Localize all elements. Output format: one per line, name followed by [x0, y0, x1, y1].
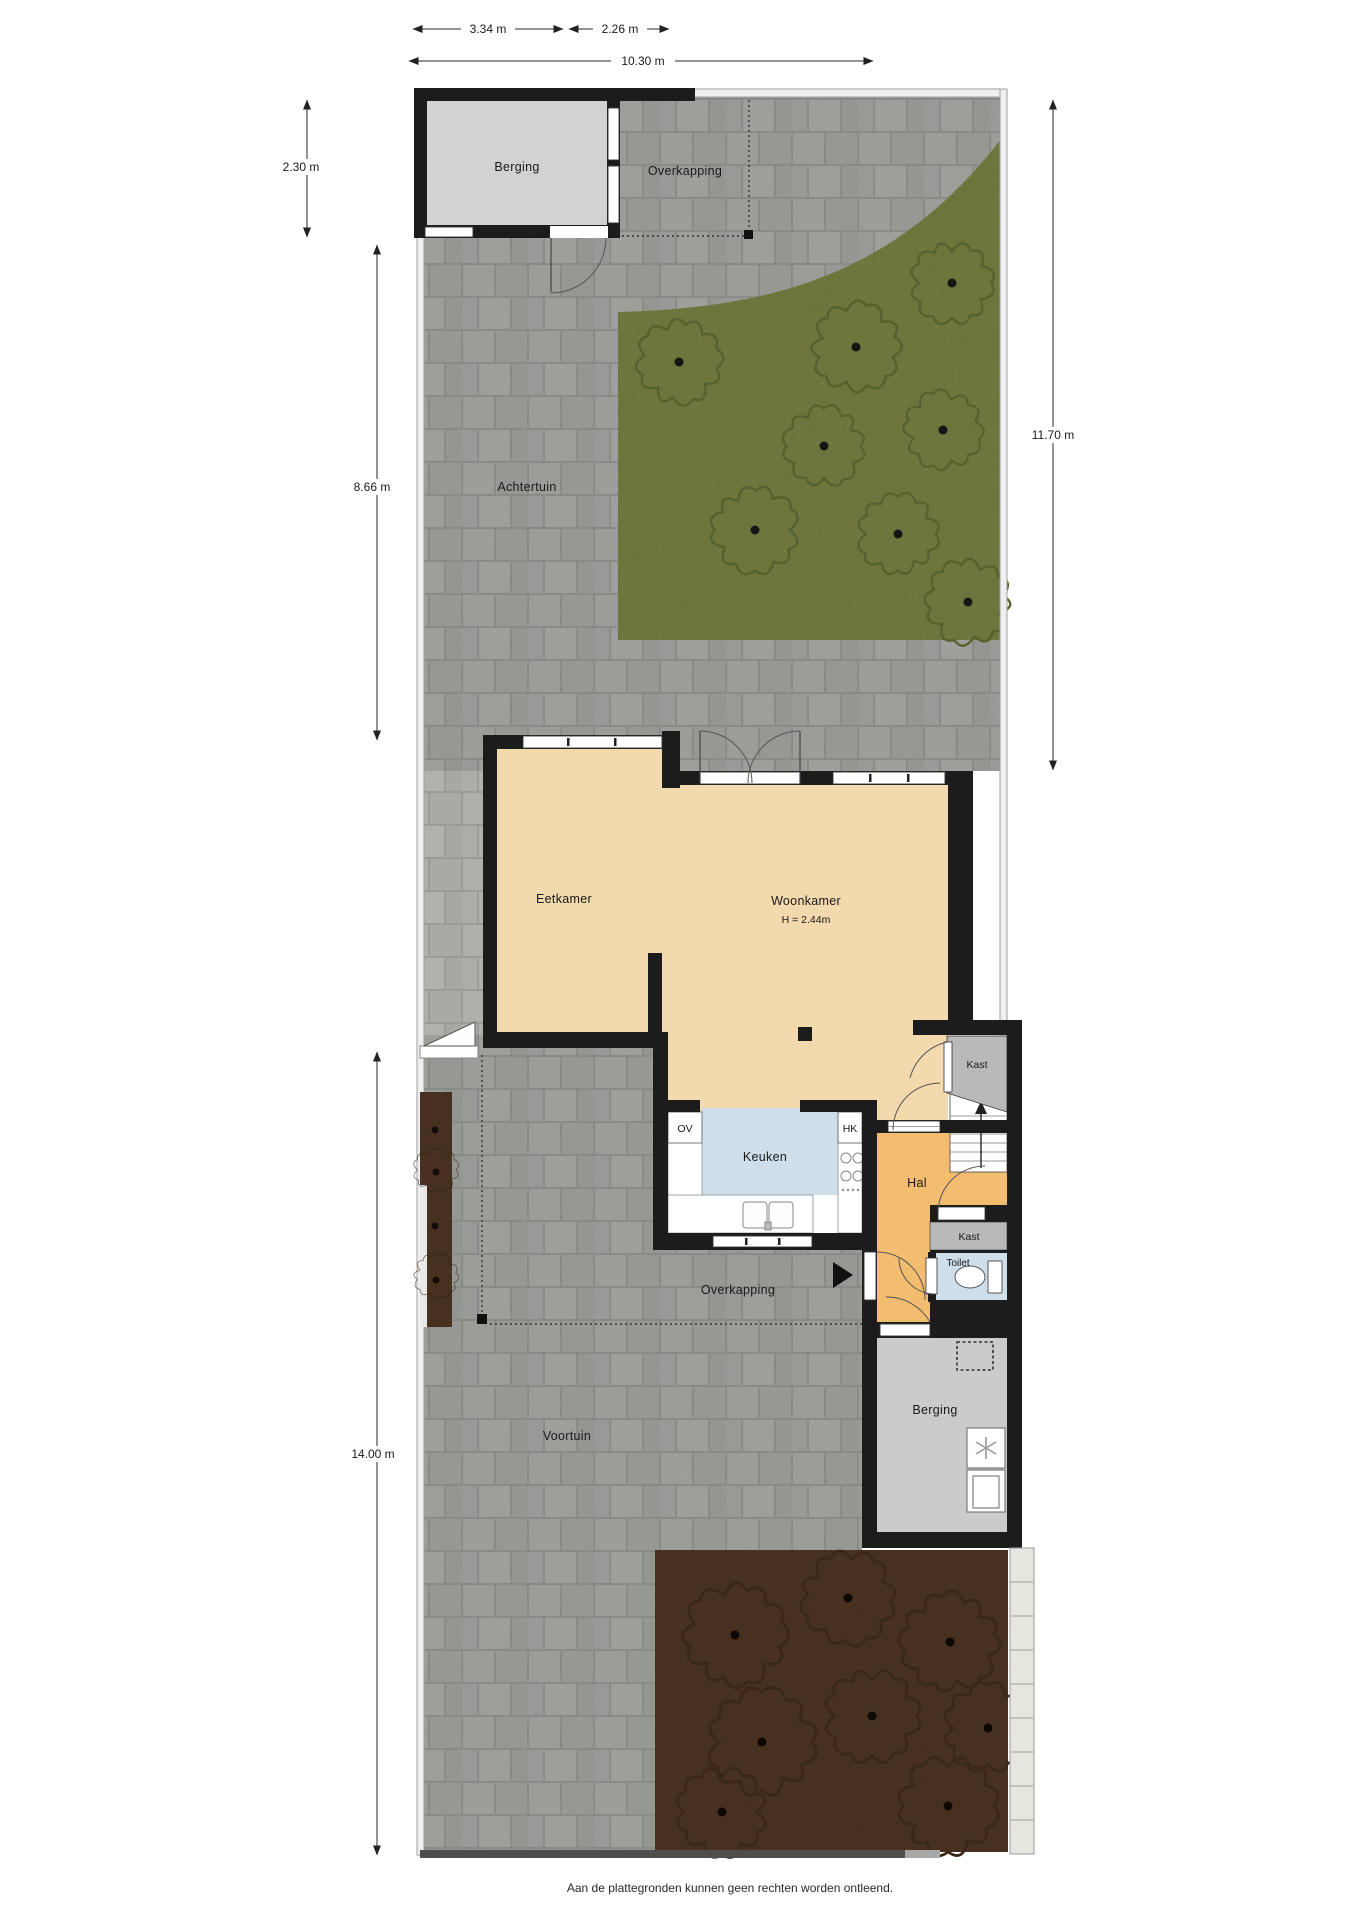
label-hal: Hal	[907, 1176, 927, 1190]
dim-top-total: 10.30 m	[621, 54, 664, 68]
toilet-door	[926, 1258, 937, 1294]
french-doors	[700, 772, 800, 784]
label-toilet: Toilet	[946, 1258, 970, 1269]
living-room-column	[798, 1027, 812, 1041]
hall-storage-door	[880, 1324, 930, 1336]
label-hk: HK	[843, 1123, 858, 1135]
dim-top-right: 2.26 m	[602, 22, 639, 36]
dining-window	[523, 736, 662, 748]
living-room-floor	[662, 785, 948, 1120]
living-window	[833, 772, 945, 784]
toilet-bowl-icon	[955, 1266, 985, 1288]
dim-side-voortuin: 14.00 m	[351, 1447, 394, 1461]
storage-window-right-1	[608, 108, 619, 160]
dim-side-right: 11.70 m	[1032, 428, 1074, 442]
label-eetkamer: Eetkamer	[536, 892, 592, 906]
dim-top-left: 3.34 m	[470, 22, 507, 36]
storage-window-bottom	[425, 227, 473, 237]
floor-plan-canvas: Berging Overkapping Achtertuin Eetkamer …	[0, 0, 1358, 1920]
label-berging-top: Berging	[494, 160, 539, 174]
label-oven: OV	[677, 1123, 692, 1135]
label-overkapping-top: Overkapping	[648, 164, 722, 178]
dim-side-berging: 2.30 m	[283, 160, 320, 174]
closet-lower-door	[938, 1207, 985, 1220]
label-overkapping-onder: Overkapping	[701, 1283, 775, 1297]
stepping-stone-path	[1010, 1548, 1034, 1854]
label-woonkamer-ceiling: H = 2.44m	[782, 914, 831, 926]
storage-window-right-2	[608, 166, 619, 223]
disclaimer-text: Aan de plattegronden kunnen geen rechten…	[567, 1881, 893, 1895]
label-kast-onder: Kast	[958, 1231, 979, 1243]
floor-plan-page: Berging Overkapping Achtertuin Eetkamer …	[0, 0, 1358, 1920]
dim-side-achtertuin: 8.66 m	[354, 480, 391, 494]
kitchen-window	[713, 1236, 812, 1247]
label-berging-onder: Berging	[912, 1403, 957, 1417]
label-keuken: Keuken	[743, 1150, 787, 1164]
label-kast-boven: Kast	[966, 1059, 987, 1071]
closet-upper-door	[944, 1042, 952, 1092]
garden-gate	[420, 1046, 478, 1058]
label-woonkamer: Woonkamer	[771, 894, 841, 908]
label-voortuin: Voortuin	[543, 1429, 591, 1443]
dining-room-floor	[497, 749, 662, 1032]
label-achtertuin: Achtertuin	[497, 480, 556, 494]
front-door	[864, 1252, 876, 1300]
toilet-tank-icon	[988, 1261, 1002, 1293]
bottom-boundary	[420, 1850, 905, 1858]
fence-right	[1000, 89, 1007, 1038]
storage-door-opening	[550, 226, 608, 238]
